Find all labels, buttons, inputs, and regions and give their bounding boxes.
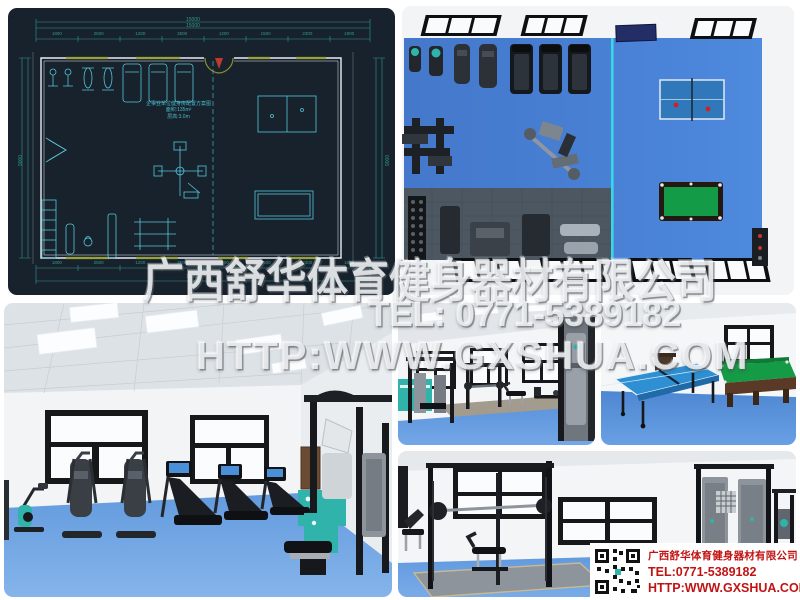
- treadmill-glyphs: [123, 64, 193, 102]
- cad-room-label: 企事业单位健身房配置方案图 面积:135m² 层高:3.0m: [146, 101, 211, 120]
- wall-rack-topdown: [752, 228, 768, 266]
- topdown-render-panel: [402, 6, 794, 295]
- cad-dim-seg: 1500: [245, 32, 287, 37]
- cad-dim-bottom-total: 15000: [186, 275, 200, 280]
- multi-gym-glyph: [154, 142, 206, 198]
- cad-floor-plan-panel: 15000 15000 1800 2500 1200 3500 1200 150…: [8, 8, 395, 295]
- cad-dim-top-segments: 1800 2500 1200 3500 1200 1500 2300 1800: [36, 32, 370, 37]
- cable-tower: [558, 317, 595, 441]
- pool-table: [719, 357, 796, 407]
- blue-floor: [601, 391, 796, 445]
- window: [724, 325, 774, 363]
- brand-logo-dot: [306, 497, 311, 502]
- room-walls: [41, 58, 341, 258]
- cad-dim-seg: 2500: [78, 32, 120, 37]
- cad-dim-seg: 1800: [36, 261, 78, 266]
- bike-glyphs: [48, 69, 73, 86]
- elliptical-glyphs: [82, 68, 114, 90]
- cad-dim-seg: 1500: [245, 261, 287, 266]
- dumbbell-rack-topdown: [408, 196, 426, 260]
- topdown-render: [402, 6, 794, 295]
- cad-dim-left-total: 9000: [19, 155, 24, 166]
- table-room-render: [601, 303, 796, 445]
- double-door-symbol: [205, 58, 233, 73]
- cardio-room-render-panel: [4, 303, 392, 597]
- cyan-divider-line: [611, 38, 614, 260]
- contact-company-name: 广西舒华体育健身器材有限公司: [648, 548, 800, 563]
- cad-dim-seg: 3500: [161, 261, 203, 266]
- cad-room-label-height: 层高:3.0m: [146, 114, 211, 120]
- corner-rack-glyph: [46, 138, 66, 162]
- cad-dim-seg: 1200: [120, 32, 162, 37]
- ping-pong-glyph: [258, 96, 316, 132]
- cad-dim-seg: 1200: [203, 261, 245, 266]
- strength-room-render-panel: [398, 303, 595, 445]
- small-equipment-glyphs: [42, 200, 176, 258]
- cad-dim-seg: 2300: [287, 261, 329, 266]
- edge-equipment: [4, 480, 9, 540]
- equipment-glyphs: [42, 64, 316, 258]
- cad-dim-seg: 1800: [328, 261, 370, 266]
- cad-floor-plan-drawing: [8, 8, 395, 295]
- cad-dim-seg: 2300: [287, 32, 329, 37]
- treadmills-topdown: [510, 44, 591, 94]
- gym-brochure-collage: 15000 15000 1800 2500 1200 3500 1200 150…: [0, 0, 800, 600]
- pool-table-glyph: [255, 191, 313, 219]
- table-room-render-panel: [601, 303, 796, 445]
- qr-code-icon: [593, 547, 642, 596]
- contact-website: HTTP:WWW.GXSHUA.COM: [648, 581, 800, 595]
- cad-dim-top-total-inner: 15000: [186, 24, 200, 29]
- contact-info-text: 广西舒华体育健身器材有限公司 TEL:0771-5389182 HTTP:WWW…: [648, 548, 800, 595]
- entrance-mat: [616, 24, 657, 41]
- window-symbols: [66, 58, 326, 258]
- cardio-room-render: [4, 303, 392, 597]
- contact-telephone: TEL:0771-5389182: [648, 565, 800, 579]
- cad-dim-seg: 2500: [78, 261, 120, 266]
- cad-dim-right-total: 9000: [386, 155, 391, 166]
- pool-table-topdown: [659, 182, 723, 221]
- ping-pong-table-topdown: [660, 78, 724, 121]
- cad-dim-seg: 1800: [328, 32, 370, 37]
- strength-room-render: [398, 303, 595, 445]
- cad-dim-seg: 3500: [161, 32, 203, 37]
- cad-dim-seg: 1200: [203, 32, 245, 37]
- contact-info-box: 广西舒华体育健身器材有限公司 TEL:0771-5389182 HTTP:WWW…: [590, 543, 800, 600]
- cad-dim-bottom-segments: 1800 2500 1200 3500 1200 1500 2300 1800: [36, 261, 370, 266]
- cad-dim-seg: 1800: [36, 32, 78, 37]
- cad-dim-seg: 1200: [120, 261, 162, 266]
